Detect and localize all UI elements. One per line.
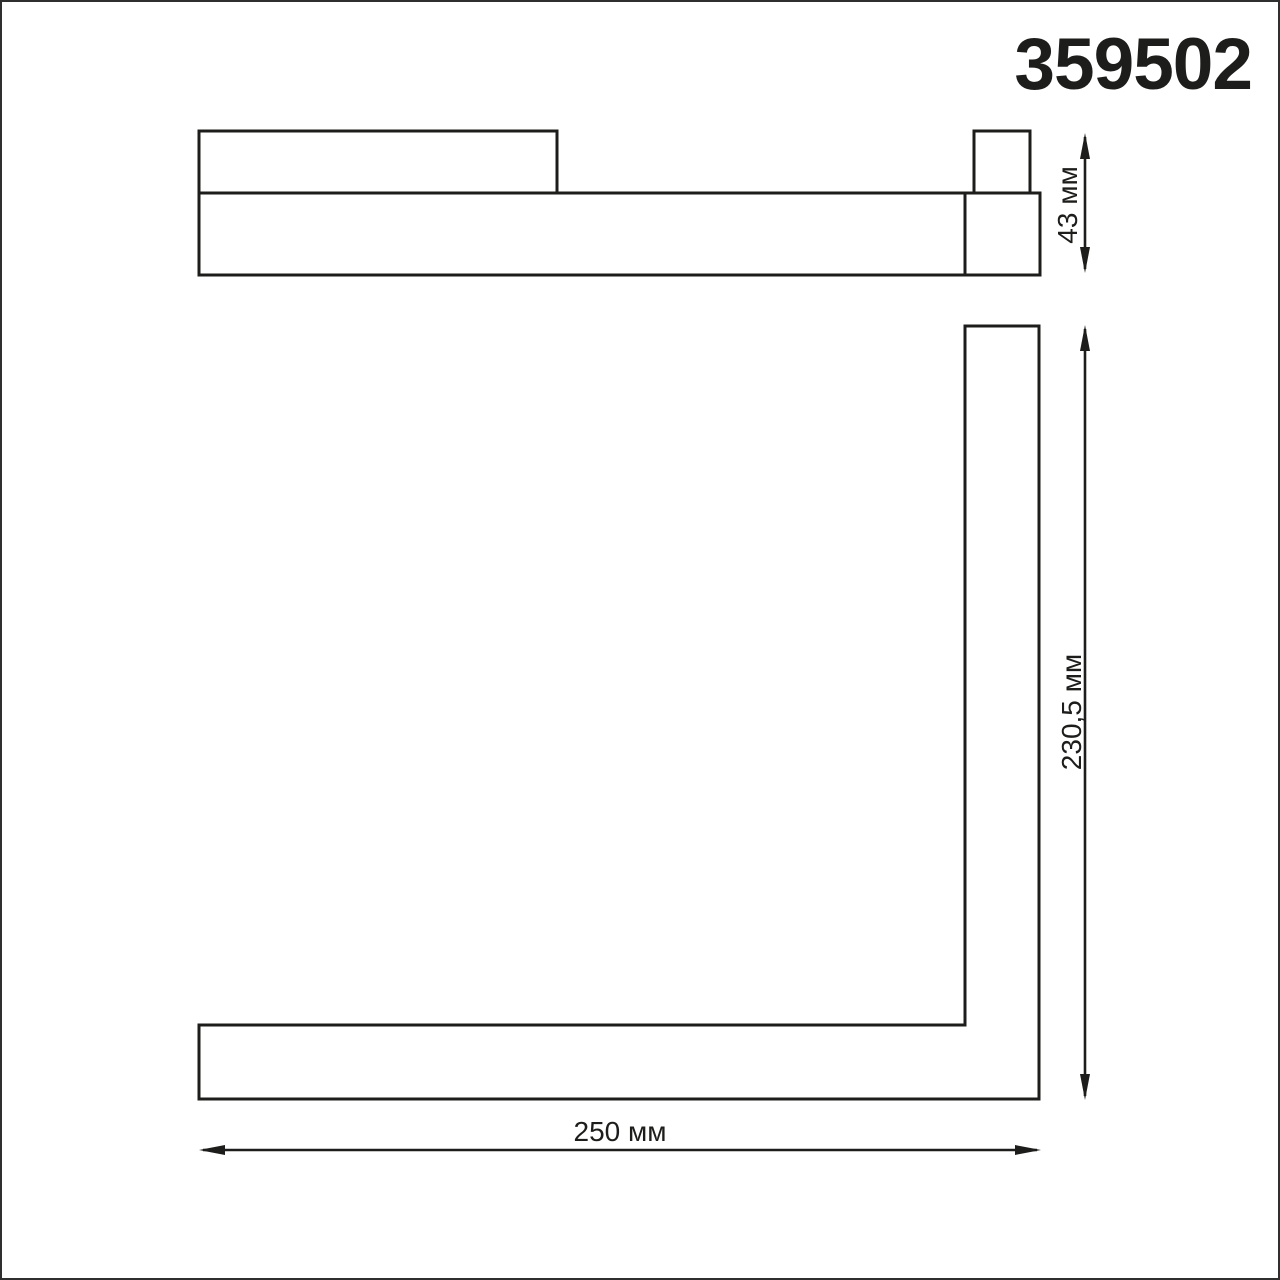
arrow-up-icon <box>1080 325 1090 351</box>
arrow-left-icon <box>199 1145 225 1155</box>
front-view <box>199 326 1039 1099</box>
arrow-right-icon <box>1015 1145 1041 1155</box>
dimension-depth-label: 230,5 мм <box>1056 602 1088 822</box>
side-view-track-adapter <box>974 131 1030 193</box>
arrow-down-icon <box>1080 1074 1090 1100</box>
front-view-outline <box>199 326 1039 1099</box>
side-view-main-bar <box>199 193 965 275</box>
drawing-canvas: 359502 43 <box>0 0 1280 1280</box>
dimension-height-label: 43 мм <box>1052 125 1084 285</box>
dimension-width-label: 250 мм <box>510 1116 730 1148</box>
side-view-end-block <box>965 193 1040 275</box>
side-view <box>199 131 1040 275</box>
side-view-upper-body <box>199 131 557 193</box>
